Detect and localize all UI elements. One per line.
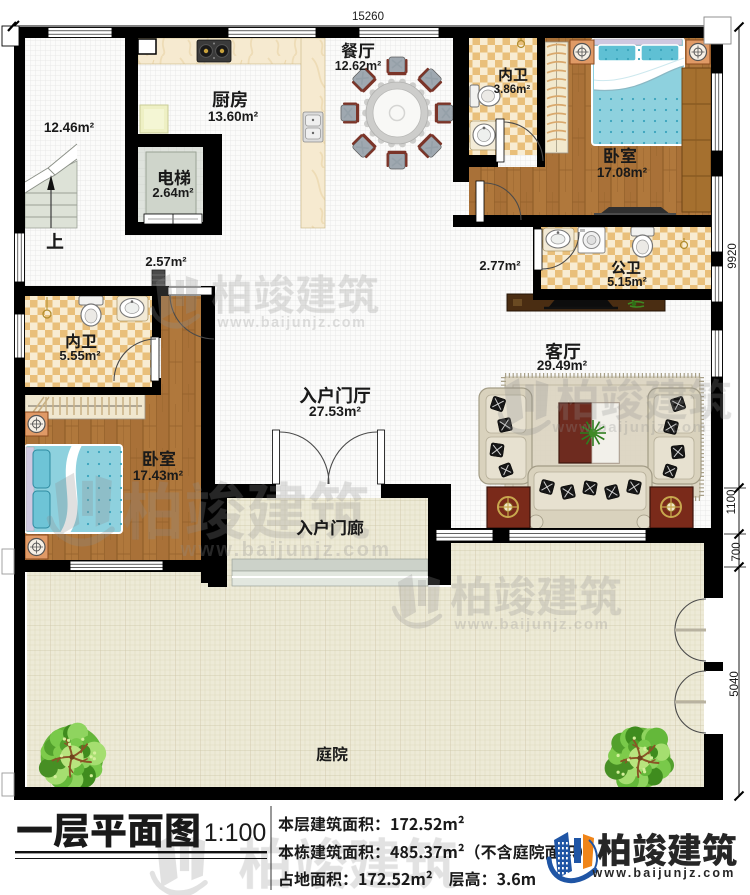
svg-text:2.57m²: 2.57m² <box>145 254 187 269</box>
svg-text:29.49m²: 29.49m² <box>537 358 588 373</box>
svg-text:13.60m²: 13.60m² <box>208 109 259 124</box>
svg-text:2.77m²: 2.77m² <box>479 258 521 273</box>
svg-text:1100: 1100 <box>726 490 738 515</box>
svg-text:5.55m²: 5.55m² <box>59 348 101 363</box>
svg-text:15260: 15260 <box>352 11 384 23</box>
svg-text:3.86m²: 3.86m² <box>494 84 531 96</box>
svg-text:www.baijunjz.com: www.baijunjz.com <box>216 315 366 331</box>
svg-text:2.64m²: 2.64m² <box>152 185 194 200</box>
svg-text:www.baijunjz.com: www.baijunjz.com <box>453 616 609 633</box>
svg-text:27.53m²: 27.53m² <box>309 403 361 419</box>
svg-text:www.baijunjz.com: www.baijunjz.com <box>591 866 735 880</box>
svg-text:www.baijunjz.com: www.baijunjz.com <box>551 419 707 436</box>
svg-text:12.62m²: 12.62m² <box>335 59 382 73</box>
svg-text:5040: 5040 <box>729 671 741 697</box>
svg-text:9920: 9920 <box>727 243 739 269</box>
svg-text:12.46m²: 12.46m² <box>44 120 95 135</box>
svg-text:5.15m²: 5.15m² <box>607 275 647 289</box>
svg-text:700: 700 <box>731 542 743 561</box>
svg-text:17.08m²: 17.08m² <box>597 165 648 180</box>
svg-text:www.baijunjz.com: www.baijunjz.com <box>179 539 391 561</box>
svg-text:1:100: 1:100 <box>204 819 267 847</box>
svg-text:17.43m²: 17.43m² <box>133 468 184 483</box>
